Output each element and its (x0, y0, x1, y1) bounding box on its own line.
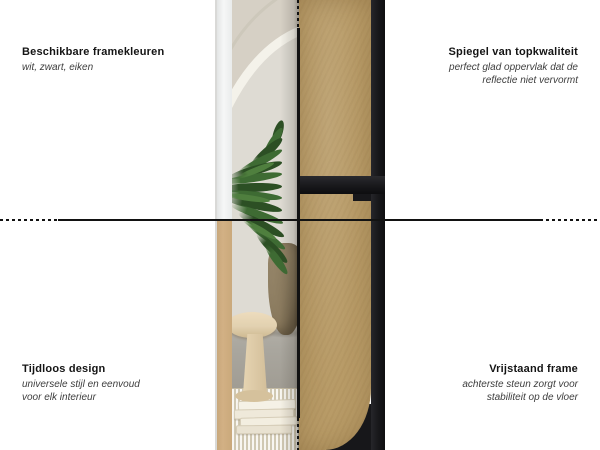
feature-subtitle-line: stabiliteit op de vloer (462, 392, 578, 405)
mirror-glass-reflection (232, 0, 299, 450)
stand-support-bar (299, 176, 385, 194)
frame-black-sample (371, 0, 385, 450)
feature-subtitle-line: achterste steun zorgt voor (462, 379, 578, 392)
feature-subtitle-line: universele stijl en eenvoud (22, 379, 140, 392)
feature-subtitle-line: wit, zwart, eiken (22, 62, 164, 75)
feature-subtitle-line: perfect glad oppervlak dat de (449, 62, 579, 75)
feature-subtitle-line: reflectie niet vervormt (449, 75, 579, 88)
feature-freestanding-frame: Vrijstaand frame achterste steun zorgt v… (462, 363, 578, 404)
stand-hinge (353, 194, 371, 201)
feature-title: Vrijstaand frame (462, 363, 578, 375)
mirror-wall-arches (232, 0, 299, 150)
feature-title: Beschikbare framekleuren (22, 46, 164, 58)
mdf-back-panel (299, 0, 371, 450)
stacked-slab (236, 425, 292, 434)
frame-white-sample (217, 0, 233, 221)
divider-line-vertical (297, 28, 300, 418)
feature-subtitle-line: voor elk interieur (22, 392, 140, 405)
product-photo (215, 0, 385, 450)
feature-title: Tijdloos design (22, 363, 140, 375)
frame-oak-sample (217, 221, 233, 450)
infographic-canvas: Beschikbare framekleuren wit, zwart, eik… (0, 0, 600, 450)
feature-title: Spiegel van topkwaliteit (449, 46, 579, 58)
divider-dotted-right (540, 219, 600, 221)
feature-frame-colors: Beschikbare framekleuren wit, zwart, eik… (22, 46, 164, 75)
feature-timeless-design: Tijdloos design universele stijl en eenv… (22, 363, 140, 404)
stool-base (235, 390, 273, 402)
feature-mirror-quality: Spiegel van topkwaliteit perfect glad op… (449, 46, 579, 87)
divider-dotted-left (0, 219, 58, 221)
divider-dotted-top (297, 0, 299, 28)
divider-dotted-bottom (297, 418, 299, 450)
